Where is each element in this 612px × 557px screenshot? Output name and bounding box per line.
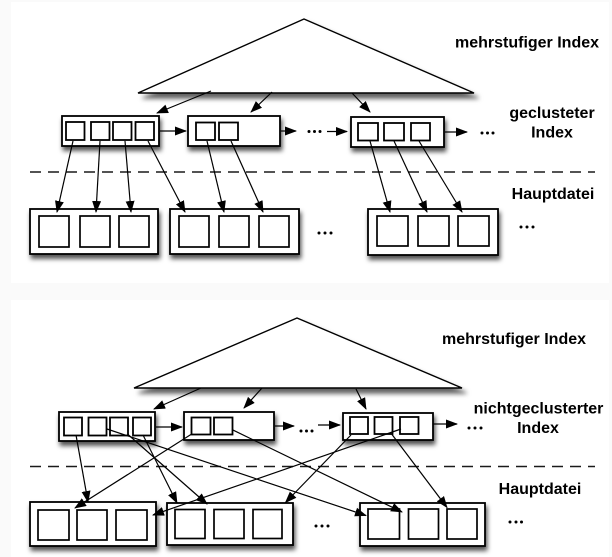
svg-text:Index: Index	[531, 125, 573, 142]
svg-text:nichtgeclusterter: nichtgeclusterter	[474, 401, 604, 418]
svg-text:geclusteter: geclusteter	[509, 105, 594, 122]
svg-text:mehrstufiger Index: mehrstufiger Index	[442, 331, 586, 348]
svg-text:Hauptdatei: Hauptdatei	[499, 481, 582, 498]
svg-text:Hauptdatei: Hauptdatei	[512, 186, 595, 203]
svg-text:mehrstufiger Index: mehrstufiger Index	[455, 35, 599, 52]
svg-text:Index: Index	[517, 420, 559, 437]
